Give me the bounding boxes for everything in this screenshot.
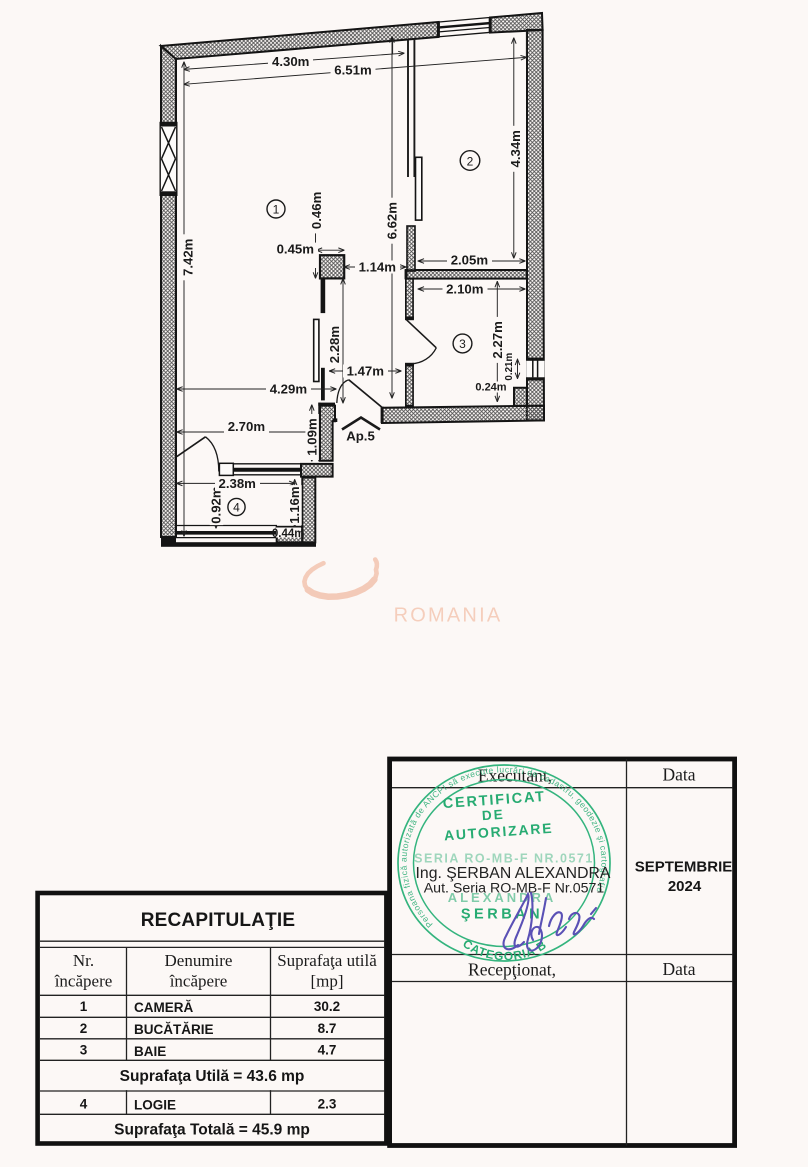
svg-text:0.21m: 0.21m (504, 353, 515, 381)
svg-text:4.34m: 4.34m (508, 130, 523, 167)
svg-text:4.7: 4.7 (318, 1043, 337, 1058)
svg-text:2024: 2024 (668, 878, 702, 895)
svg-text:Aut. Seria RO-MB-F Nr.0571: Aut. Seria RO-MB-F Nr.0571 (424, 881, 605, 897)
svg-text:2.38m: 2.38m (218, 476, 255, 491)
svg-text:SERIA RO-MB-F NR.0571: SERIA RO-MB-F NR.0571 (414, 852, 594, 866)
svg-text:BAIE: BAIE (134, 1044, 166, 1059)
svg-text:8.7: 8.7 (318, 1021, 337, 1036)
svg-text:1.47m: 1.47m (347, 364, 384, 379)
svg-text:Ap.5: Ap.5 (346, 429, 375, 444)
svg-text:3: 3 (80, 1043, 88, 1058)
svg-text:0.44m: 0.44m (272, 528, 305, 540)
svg-text:ROMANIA: ROMANIA (394, 605, 503, 627)
svg-text:2: 2 (467, 154, 474, 168)
svg-text:3: 3 (459, 337, 466, 351)
svg-text:Denumire: Denumire (165, 951, 233, 970)
svg-text:încăpere: încăpere (169, 972, 228, 991)
svg-text:4.29m: 4.29m (270, 382, 307, 397)
svg-text:2.3: 2.3 (318, 1097, 337, 1112)
svg-text:Ing. ŞERBAN ALEXANDRA: Ing. ŞERBAN ALEXANDRA (416, 865, 611, 882)
svg-text:BUCĂTĂRIE: BUCĂTĂRIE (134, 1022, 214, 1037)
svg-text:SEPTEMBRIE: SEPTEMBRIE (635, 859, 733, 876)
svg-text:LOGIE: LOGIE (134, 1098, 176, 1113)
svg-text:0.92m: 0.92m (209, 486, 224, 523)
svg-text:7.42m: 7.42m (181, 239, 196, 276)
svg-text:30.2: 30.2 (314, 999, 340, 1014)
svg-text:6.62m: 6.62m (384, 202, 399, 239)
svg-text:încăpere: încăpere (54, 972, 113, 991)
svg-text:2.27m: 2.27m (490, 321, 505, 358)
svg-text:Data: Data (662, 765, 695, 785)
svg-text:1: 1 (80, 999, 88, 1014)
svg-text:2: 2 (80, 1021, 88, 1036)
svg-text:1.14m: 1.14m (359, 260, 396, 275)
svg-text:DE: DE (481, 807, 505, 824)
svg-text:4: 4 (80, 1097, 88, 1112)
svg-text:1.16m: 1.16m (287, 486, 302, 523)
svg-text:0.45m: 0.45m (277, 242, 314, 257)
svg-text:Suprafaţa utilă: Suprafaţa utilă (277, 951, 377, 970)
svg-text:4.30m: 4.30m (272, 54, 309, 69)
svg-text:4: 4 (233, 501, 240, 515)
svg-text:2.05m: 2.05m (451, 253, 488, 268)
svg-text:1.09m: 1.09m (304, 418, 319, 455)
svg-text:Nr.: Nr. (73, 951, 94, 970)
svg-text:1: 1 (273, 203, 280, 217)
svg-text:Suprafaţa Utilă = 43.6 mp: Suprafaţa Utilă = 43.6 mp (120, 1068, 305, 1085)
svg-text:6.51m: 6.51m (334, 63, 371, 78)
svg-text:2.70m: 2.70m (228, 419, 265, 434)
svg-text:Data: Data (662, 959, 695, 979)
svg-text:2.28m: 2.28m (327, 326, 342, 363)
svg-text:CAMERĂ: CAMERĂ (134, 1000, 193, 1015)
svg-text:0.46m: 0.46m (309, 192, 324, 229)
svg-text:0.24m: 0.24m (475, 382, 506, 394)
svg-text:Suprafaţa Totală = 45.9 mp: Suprafaţa Totală = 45.9 mp (114, 1122, 310, 1139)
svg-text:RECAPITULAŢIE: RECAPITULAŢIE (141, 910, 296, 931)
svg-text:AUTORIZARE: AUTORIZARE (443, 820, 553, 844)
svg-text:2.10m: 2.10m (446, 282, 483, 297)
svg-text:[mp]: [mp] (310, 972, 343, 991)
